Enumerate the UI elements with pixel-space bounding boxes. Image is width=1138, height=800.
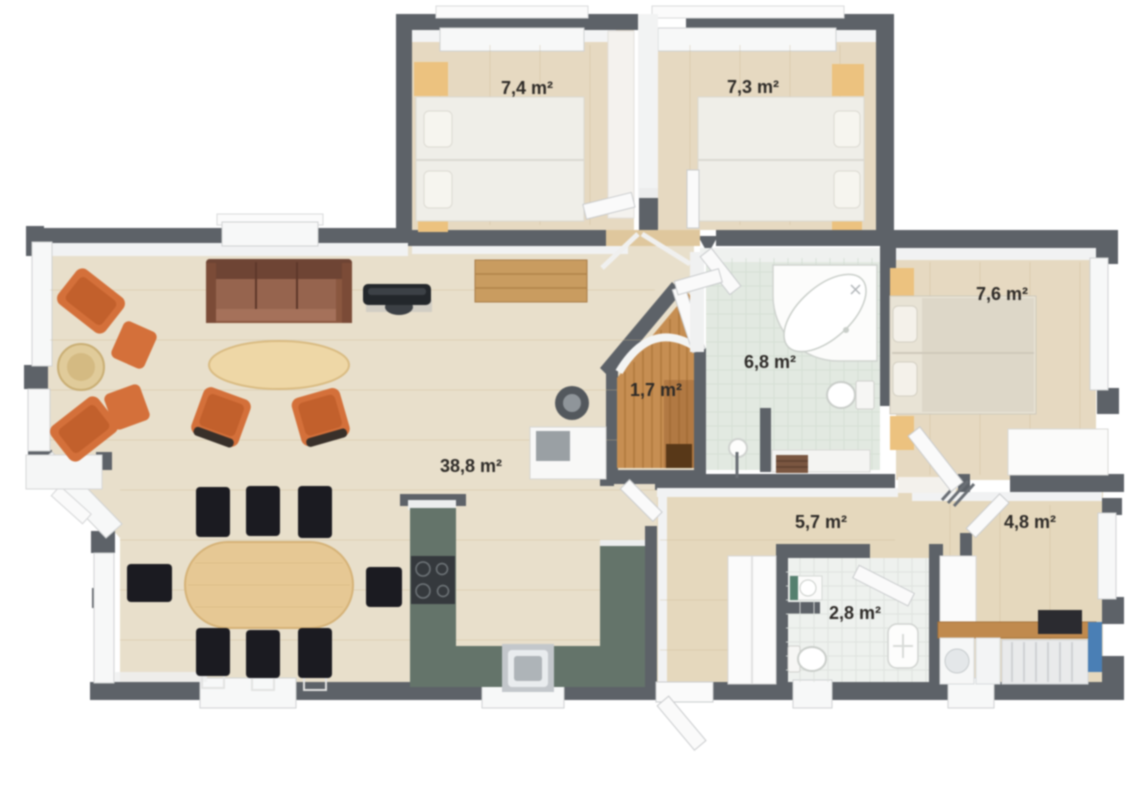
svg-text:7,4 m²: 7,4 m²: [501, 78, 553, 98]
svg-text:5,7 m²: 5,7 m²: [795, 512, 847, 532]
svg-text:7,3 m²: 7,3 m²: [727, 77, 779, 97]
svg-text:7,6 m²: 7,6 m²: [976, 284, 1028, 304]
svg-text:1,7 m²: 1,7 m²: [630, 380, 682, 400]
svg-text:6,8 m²: 6,8 m²: [744, 352, 796, 372]
svg-text:2,8 m²: 2,8 m²: [829, 603, 881, 623]
svg-text:4,8 m²: 4,8 m²: [1004, 512, 1056, 532]
svg-text:38,8 m²: 38,8 m²: [440, 456, 502, 476]
